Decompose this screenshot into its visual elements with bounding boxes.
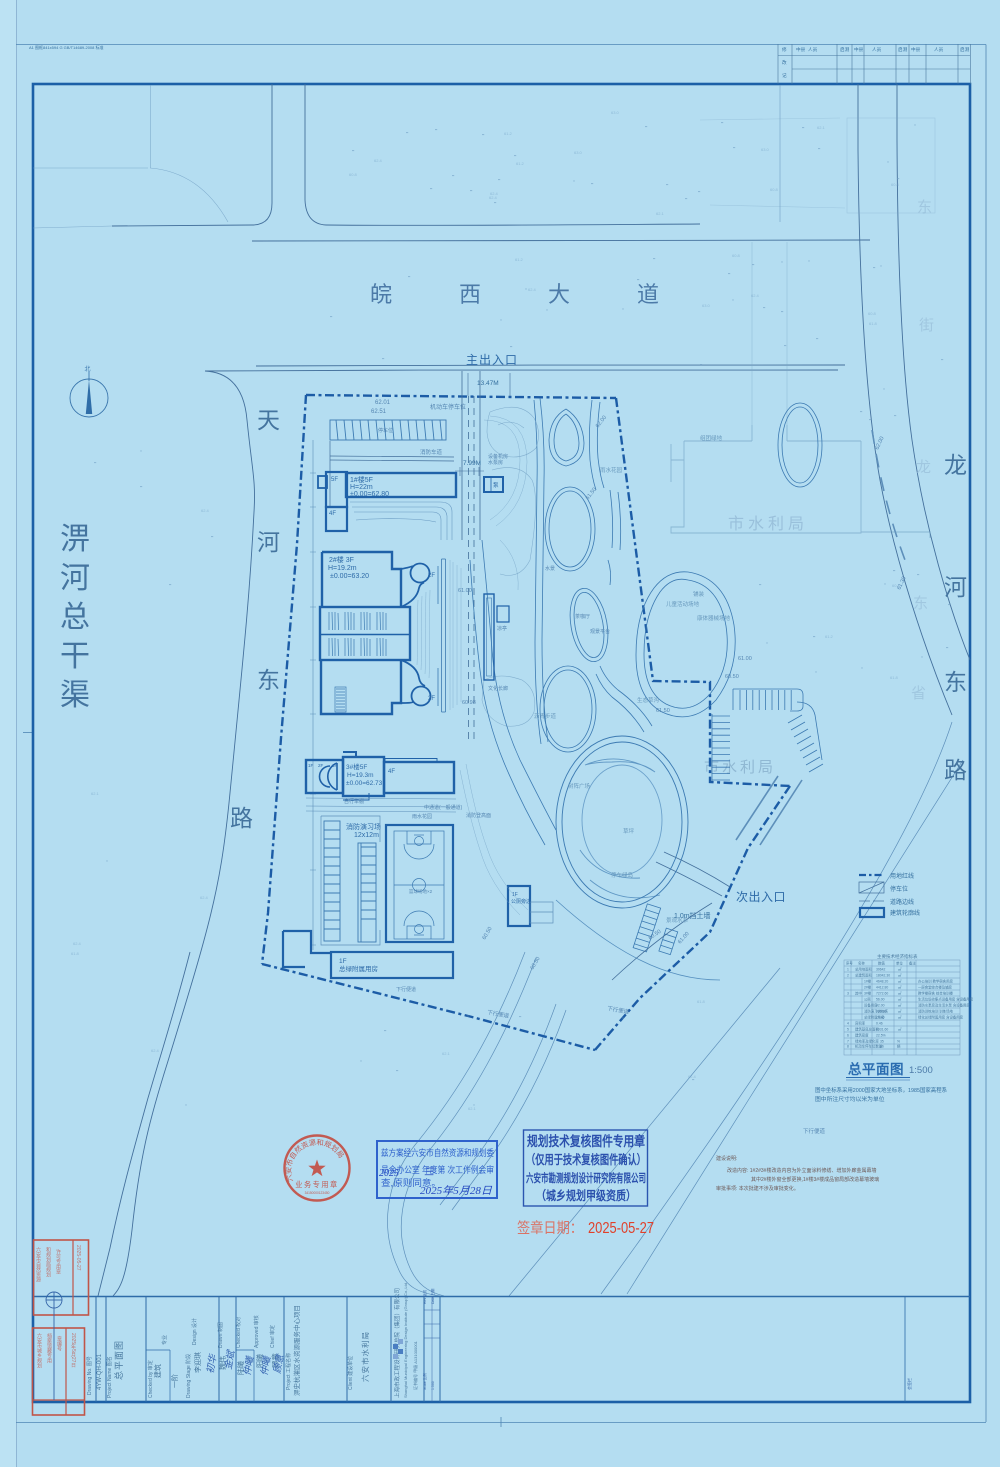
svg-text:机动车停车位数量: 机动车停车位数量: [855, 1044, 883, 1049]
svg-text:12x12m: 12x12m: [354, 832, 379, 839]
svg-text:中县: 中县: [796, 46, 806, 53]
svg-text:35: 35: [880, 1040, 884, 1044]
svg-text:教学楼宿舍 综合培训楼: 教学楼宿舍 综合培训楼: [918, 991, 953, 996]
svg-text:下行便道: 下行便道: [396, 986, 416, 993]
svg-text:单位: 单位: [896, 961, 903, 966]
svg-text:西: 西: [459, 282, 481, 307]
svg-text:61.8: 61.8: [869, 321, 878, 326]
svg-text:62.4: 62.4: [151, 1048, 160, 1053]
svg-text:规划技术复核图件专用章: 规划技术复核图件专用章: [527, 1133, 645, 1149]
svg-text:省: 省: [911, 685, 926, 702]
svg-text:建筑密度: 建筑密度: [855, 1033, 869, 1038]
svg-text:河: 河: [257, 529, 280, 555]
svg-text:用地红线: 用地红线: [890, 872, 914, 880]
svg-text:凉亭: 凉亭: [497, 625, 507, 632]
svg-text:2025-05-27: 2025-05-27: [75, 1245, 81, 1271]
svg-text:雨水花园: 雨水花园: [600, 466, 623, 474]
svg-text:Design 设计: Design 设计: [191, 1318, 198, 1345]
svg-text:消防水泵房及生活水泵 含设备用房: 消防水泵房及生活水泵 含设备用房: [918, 1003, 970, 1008]
svg-text:1:500: 1:500: [909, 1065, 933, 1076]
svg-text:63.0: 63.0: [611, 110, 620, 115]
svg-text:96: 96: [880, 1045, 884, 1049]
svg-text:62.4: 62.4: [688, 1074, 697, 1079]
svg-text:总用地面积: 总用地面积: [855, 967, 873, 972]
svg-text:其中: 其中: [855, 991, 862, 996]
svg-text:8931.60: 8931.60: [876, 1028, 888, 1032]
svg-text:东: 东: [257, 667, 280, 693]
svg-text:2F: 2F: [428, 573, 435, 579]
svg-text:62.4: 62.4: [374, 158, 383, 163]
svg-text:34150000123450: 34150000123450: [305, 1191, 330, 1195]
svg-text:1F: 1F: [512, 892, 518, 898]
svg-text:六安市水利局: 六安市水利局: [360, 1331, 370, 1382]
svg-text:许可专用章: 许可专用章: [55, 1248, 61, 1275]
svg-text:（城乡规划甲级资质）: （城乡规划甲级资质）: [536, 1188, 636, 1203]
svg-text:62.4: 62.4: [751, 293, 760, 298]
svg-text:市水利局: 市水利局: [728, 515, 808, 533]
svg-text:2: 2: [847, 974, 849, 978]
svg-text:39642: 39642: [876, 968, 886, 972]
svg-text:东: 东: [944, 669, 967, 695]
svg-text:河: 河: [60, 562, 90, 595]
svg-text:公厕旁边: 公厕旁边: [511, 898, 531, 905]
svg-text:数值: 数值: [878, 961, 885, 966]
svg-text:证书编号 甲级 A131000001: 证书编号 甲级 A131000001: [412, 1340, 418, 1390]
svg-text:7.99M: 7.99M: [463, 460, 481, 467]
svg-text:和规划局规划: 和规划局规划: [45, 1246, 51, 1277]
svg-text:Rev 版次: Rev 版次: [422, 1289, 427, 1304]
svg-text:改造内容: 1#2#3#楼改造内容为外立面涂料修缮、增加外廊: 改造内容: 1#2#3#楼改造内容为外立面涂料修缮、增加外廊金属幕墙: [727, 1167, 876, 1174]
svg-text:停车位: 停车位: [378, 427, 393, 434]
svg-text:2025: 2025: [379, 1168, 399, 1179]
svg-text:三: 三: [424, 1167, 435, 1178]
svg-text:A1 图框841x594 G GB/T14689-200: A1 图框841x594 G GB/T14689-2008 标准: [29, 44, 103, 50]
svg-text:61.8: 61.8: [890, 675, 899, 680]
svg-text:62.1: 62.1: [91, 791, 100, 796]
svg-text:62.4: 62.4: [201, 508, 210, 513]
svg-text:62.4: 62.4: [528, 287, 537, 292]
svg-text:序号: 序号: [846, 961, 853, 966]
svg-text:水泵房: 水泵房: [488, 459, 503, 466]
svg-text:1: 1: [847, 968, 849, 972]
svg-text:7272.60: 7272.60: [876, 992, 888, 996]
svg-text:62.51: 62.51: [371, 409, 387, 415]
svg-text:章编号: 章编号: [56, 1335, 62, 1352]
svg-text:4648.20: 4648.20: [876, 980, 888, 984]
svg-text:996.00: 996.00: [876, 1010, 886, 1014]
svg-text:Approved 审核: Approved 审核: [253, 1315, 260, 1348]
svg-text:自行车棚: 自行车棚: [344, 798, 364, 805]
svg-text:61.8: 61.8: [71, 951, 80, 956]
svg-text:4412.80: 4412.80: [876, 986, 888, 990]
svg-text:Shanghai Municipal Engineering: Shanghai Municipal Engineering Design In…: [403, 1282, 408, 1398]
svg-text:±0.00=63.20: ±0.00=63.20: [330, 573, 369, 580]
svg-text:H=19.2m: H=19.2m: [328, 565, 357, 572]
svg-text:Project 工程名称: Project 工程名称: [285, 1353, 292, 1390]
svg-text:8: 8: [847, 1045, 849, 1049]
svg-text:淠: 淠: [60, 523, 90, 556]
svg-text:Project Name 图名: Project Name 图名: [106, 1356, 113, 1398]
svg-text:会签栏: 会签栏: [906, 1378, 912, 1390]
svg-text:61.00: 61.00: [738, 656, 752, 662]
svg-text:1#楼5F: 1#楼5F: [350, 475, 373, 484]
svg-text:沥青步道: 沥青步道: [534, 712, 557, 720]
svg-text:其中2#楼外窗全部更换,1#楼3#楼成品窗局部改造幕墙玻璃: 其中2#楼外窗全部更换,1#楼3#楼成品窗局部改造幕墙玻璃: [751, 1176, 879, 1183]
svg-text:河: 河: [944, 574, 967, 600]
svg-text:办公培训 教学宿舍用房: 办公培训 教学宿舍用房: [918, 979, 953, 984]
svg-text:3#楼: 3#楼: [864, 991, 872, 996]
svg-text:2F: 2F: [428, 696, 435, 702]
svg-text:Drawing Stage 阶段: Drawing Stage 阶段: [185, 1354, 192, 1398]
svg-text:4: 4: [847, 1022, 849, 1026]
svg-text:2025-05-27: 2025-05-27: [588, 1220, 654, 1237]
svg-text:2#楼 3F: 2#楼 3F: [329, 555, 354, 564]
svg-text:消防演习场: 消防演习场: [346, 822, 381, 831]
svg-text:大: 大: [548, 282, 570, 307]
svg-text:Client 建设单位: Client 建设单位: [347, 1356, 354, 1390]
svg-text:60.8: 60.8: [868, 311, 877, 316]
svg-text:60.8: 60.8: [732, 253, 741, 258]
svg-text:总绿附属用房: 总绿附属用房: [339, 964, 378, 973]
svg-text:56.00: 56.00: [876, 998, 885, 1002]
svg-text:建筑: 建筑: [153, 1364, 162, 1378]
svg-text:42.00: 42.00: [876, 1004, 885, 1008]
svg-text:公厕: 公厕: [864, 998, 871, 1002]
svg-text:记: 记: [782, 72, 787, 78]
svg-text:容积率: 容积率: [855, 1021, 866, 1026]
svg-text:改: 改: [782, 59, 787, 66]
svg-text:干: 干: [60, 640, 90, 673]
svg-text:62.1: 62.1: [468, 1106, 477, 1111]
svg-text:东: 东: [917, 199, 932, 216]
svg-text:1F: 1F: [339, 958, 347, 965]
svg-text:60.98: 60.98: [462, 700, 476, 706]
svg-text:1F: 1F: [308, 763, 314, 768]
svg-text:18042.30: 18042.30: [876, 974, 890, 978]
svg-text:审批事项: 本次批建不涉及审批变化。: 审批事项: 本次批建不涉及审批变化。: [716, 1185, 799, 1192]
svg-text:兹方案经六安市自然资源和规划委: 兹方案经六安市自然资源和规划委: [381, 1147, 494, 1158]
svg-text:3#楼5F: 3#楼5F: [346, 762, 367, 771]
svg-text:60.8: 60.8: [349, 172, 358, 177]
svg-text:组团绿地: 组团绿地: [700, 434, 723, 442]
svg-text:六安市勘测规划设计研究院有限公司: 六安市勘测规划设计研究院有限公司: [526, 1171, 646, 1185]
svg-text:生活垃圾收集点设备用房 含设备用房: 生活垃圾收集点设备用房 含设备用房: [918, 997, 974, 1002]
svg-text:%: %: [897, 1040, 900, 1044]
svg-text:73.40: 73.40: [876, 1016, 885, 1020]
svg-text:4YW-QH-001: 4YW-QH-001: [97, 1353, 103, 1390]
svg-text:总建筑面积: 总建筑面积: [855, 973, 873, 978]
svg-text:62.1: 62.1: [656, 211, 665, 216]
svg-text:63.0: 63.0: [702, 303, 711, 308]
svg-text:中通道(一般通道): 中通道(一般通道): [424, 804, 463, 811]
svg-text:康体器械场地: 康体器械场地: [697, 614, 731, 622]
svg-text:启测: 启测: [898, 46, 908, 53]
svg-text:5: 5: [847, 1028, 849, 1032]
svg-text:1:500: 1:500: [431, 1381, 435, 1390]
svg-text:消防车道: 消防车道: [420, 448, 443, 456]
svg-text:次出入口: 次出入口: [736, 890, 786, 904]
svg-text:儿童活动场地: 儿童活动场地: [666, 600, 700, 608]
svg-text:六安市自然资源: 六安市自然资源: [35, 1246, 41, 1283]
svg-text:60.8: 60.8: [892, 583, 901, 588]
svg-text:生态草沟: 生态草沟: [637, 696, 660, 704]
svg-text:5F: 5F: [331, 477, 338, 483]
svg-text:专业: 专业: [161, 1335, 168, 1345]
svg-text:消防训练培训 训练场地: 消防训练培训 训练场地: [918, 1009, 953, 1014]
svg-text:树阵广场: 树阵广场: [568, 782, 591, 790]
svg-text:2025年5月27日: 2025年5月27日: [70, 1333, 76, 1369]
svg-text:篮球场地×2: 篮球场地×2: [409, 888, 433, 895]
svg-text:建筑轮廓线: 建筑轮廓线: [890, 909, 920, 917]
svg-text:H=19.3m: H=19.3m: [347, 772, 374, 779]
svg-text:道: 道: [637, 282, 659, 307]
svg-text:绿化总绿附属用房 含设备用房: 绿化总绿附属用房 含设备用房: [918, 1015, 964, 1020]
svg-text:2#楼: 2#楼: [864, 985, 872, 990]
svg-text:1F: 1F: [332, 763, 338, 768]
svg-text:建设说明:: 建设说明:: [716, 1155, 737, 1162]
svg-text:Checked by 审定: Checked by 审定: [147, 1360, 154, 1398]
svg-text:街: 街: [919, 317, 934, 334]
svg-text:路: 路: [944, 757, 967, 783]
svg-text:机动车停车位: 机动车停车位: [430, 403, 466, 411]
svg-text:6: 6: [847, 1034, 849, 1038]
svg-text:±0.00=62.73: ±0.00=62.73: [346, 780, 383, 787]
svg-text:观景平台: 观景平台: [590, 628, 610, 635]
svg-text:（仅用于技术复核图件确认）: （仅用于技术复核图件确认）: [526, 1152, 646, 1167]
svg-text:停车位: 停车位: [890, 885, 908, 893]
svg-text:绿地率及绿化率: 绿地率及绿化率: [855, 1039, 879, 1044]
svg-text:7: 7: [847, 1040, 849, 1044]
svg-text:名称: 名称: [858, 961, 865, 966]
svg-text:61.2: 61.2: [515, 257, 524, 262]
svg-text:61.2: 61.2: [516, 161, 525, 166]
svg-text:总: 总: [60, 601, 90, 634]
svg-text:H=22m: H=22m: [350, 484, 373, 491]
svg-text:总平面图: 总平面图: [848, 1061, 904, 1077]
svg-text:天: 天: [257, 407, 280, 433]
svg-text:61.2: 61.2: [504, 131, 513, 136]
svg-text:渠: 渠: [60, 679, 90, 712]
svg-text:备注: 备注: [909, 961, 916, 966]
svg-text:图中坐标系采用2000国家大地坐标系，1985国家高程系: 图中坐标系采用2000国家大地坐标系，1985国家高程系: [815, 1086, 947, 1094]
svg-text:档案馆藏专用: 档案馆藏专用: [46, 1332, 52, 1364]
svg-text:62.4: 62.4: [490, 191, 499, 196]
svg-text:4F: 4F: [388, 769, 395, 775]
svg-text:Checked 校对: Checked 校对: [235, 1317, 242, 1348]
svg-text:水景: 水景: [545, 565, 555, 572]
svg-text:62.1: 62.1: [817, 125, 826, 130]
svg-text:61.8: 61.8: [697, 999, 706, 1004]
svg-text:图中所注尺寸均以米为单位: 图中所注尺寸均以米为单位: [815, 1095, 885, 1103]
svg-text:启测: 启测: [840, 46, 850, 53]
svg-text:北: 北: [85, 365, 91, 373]
svg-text:淠史杭灌区水资源服务中心项目: 淠史杭灌区水资源服务中心项目: [292, 1305, 301, 1396]
svg-text:60.50: 60.50: [725, 674, 739, 680]
svg-text:0.46: 0.46: [876, 1022, 883, 1026]
svg-text:61.00: 61.00: [458, 588, 472, 594]
svg-text:路: 路: [230, 805, 253, 831]
svg-text:李迎琪: 李迎琪: [193, 1352, 202, 1373]
svg-text:2F: 2F: [318, 763, 324, 768]
svg-text:主出入口: 主出入口: [466, 353, 518, 367]
svg-text:1#楼: 1#楼: [864, 979, 872, 984]
svg-text:业务专用章: 业务专用章: [295, 1180, 338, 1189]
svg-text:铺装: 铺装: [693, 590, 705, 598]
svg-text:2025年5月28日: 2025年5月28日: [420, 1185, 493, 1197]
svg-text:±0.00=62.80: ±0.00=62.80: [350, 491, 389, 498]
svg-text:Drawing No. 图号: Drawing No. 图号: [87, 1356, 93, 1395]
svg-text:景观水系: 景观水系: [666, 916, 689, 924]
svg-text:Drawn 制图: Drawn 制图: [217, 1322, 224, 1348]
svg-text:签章日期：: 签章日期：: [517, 1219, 583, 1237]
svg-text:62.1: 62.1: [442, 1051, 451, 1056]
svg-text:草坪: 草坪: [623, 827, 635, 835]
svg-text:东: 东: [913, 595, 928, 612]
svg-text:泵: 泵: [493, 482, 499, 489]
svg-text:龙: 龙: [916, 459, 931, 476]
svg-text:Date 日期: Date 日期: [430, 1288, 435, 1304]
svg-text:龙: 龙: [944, 452, 967, 478]
svg-text:中县: 中县: [911, 46, 921, 53]
svg-text:61.50: 61.50: [656, 708, 670, 714]
svg-text:下行便道: 下行便道: [803, 1127, 826, 1135]
svg-text:皖: 皖: [370, 282, 392, 307]
svg-text:中县: 中县: [854, 46, 864, 53]
svg-text:62.4: 62.4: [200, 895, 209, 900]
svg-text:主要技术经济指标表: 主要技术经济指标表: [877, 953, 918, 960]
svg-text:Scale 比例: Scale 比例: [422, 1373, 427, 1390]
svg-text:3: 3: [847, 992, 849, 996]
svg-text:61.2: 61.2: [825, 634, 834, 639]
svg-text:茶咖厅: 茶咖厅: [575, 613, 590, 620]
svg-text:4F: 4F: [329, 511, 336, 517]
svg-text:一阶: 一阶: [170, 1374, 179, 1388]
svg-text:62.01: 62.01: [375, 400, 391, 406]
svg-text:60.8: 60.8: [891, 182, 900, 187]
svg-text:雨水花园: 雨水花园: [412, 813, 432, 820]
svg-text:文化长廊: 文化长廊: [488, 685, 508, 692]
svg-text:22.5%: 22.5%: [876, 1034, 886, 1038]
svg-text:Chief 审定: Chief 审定: [269, 1325, 276, 1348]
svg-text:停车绿岛: 停车绿岛: [611, 871, 634, 879]
svg-text:一层食堂综合楼及辅房: 一层食堂综合楼及辅房: [918, 985, 953, 990]
svg-text:总平面图: 总平面图: [113, 1340, 124, 1380]
svg-text:63.0: 63.0: [761, 147, 770, 152]
svg-text:六安市城乡规划: 六安市城乡规划: [36, 1332, 42, 1368]
svg-text:启测: 启测: [960, 46, 970, 53]
svg-text:63.0: 63.0: [574, 150, 583, 155]
svg-text:修: 修: [782, 46, 787, 53]
svg-text:62.4: 62.4: [73, 941, 82, 946]
svg-text:道路边线: 道路边线: [890, 898, 914, 906]
svg-text:设备机房: 设备机房: [488, 453, 508, 460]
svg-text:60.8: 60.8: [770, 187, 779, 192]
